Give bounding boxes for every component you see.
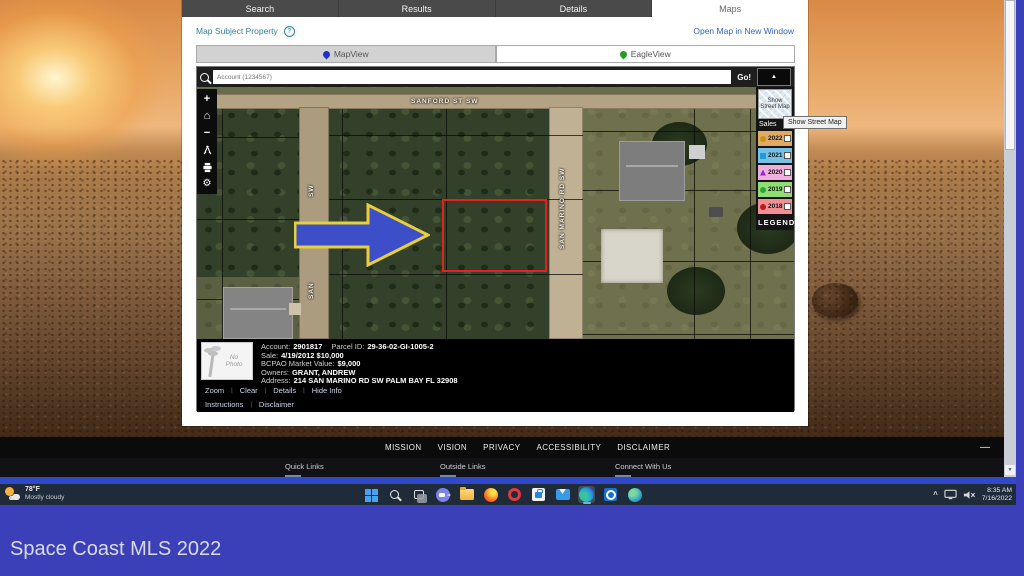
page-scrollbar[interactable]: ▼ (1004, 0, 1016, 477)
legend-marker-icon (760, 187, 766, 193)
footer-vision-link[interactable]: VISION (438, 443, 468, 452)
legend-row-2020[interactable]: 2020 (758, 165, 792, 180)
globe-icon (628, 488, 642, 502)
file-explorer-button[interactable] (458, 486, 475, 503)
parcel-line (197, 219, 299, 220)
show-street-map-tooltip: Show Street Map (783, 116, 847, 129)
eagle-pin-icon (618, 49, 628, 59)
legend-year: 2018 (768, 203, 782, 210)
opera-button[interactable] (506, 486, 523, 503)
map-subject-property-link[interactable]: Map Subject Property ? (196, 26, 295, 37)
street-label-san-marino: SAN MARINO RD SW (559, 139, 566, 249)
search-icon (390, 490, 399, 499)
outlook-icon (604, 488, 617, 501)
scrollbar-down-arrow[interactable]: ▼ (1005, 465, 1015, 475)
clock-date: 7/16/2022 (982, 495, 1012, 503)
go-button[interactable]: Go! (735, 73, 753, 82)
subject-parcel-outline[interactable] (442, 199, 547, 272)
task-view-icon (414, 490, 424, 499)
property-details-text: Account:2901817Parcel ID:29-36-02-GI-100… (261, 342, 467, 381)
tab-results[interactable]: Results (339, 0, 496, 17)
mls-content-panel: Search Results Details Maps Map Subject … (182, 0, 808, 426)
print-button[interactable] (199, 160, 215, 174)
street-label-left-fragment-bottom: SAN (308, 271, 315, 299)
footer-accessibility-link[interactable]: ACCESSIBILITY (536, 443, 601, 452)
legend-footer-label: LEGEND (758, 216, 792, 227)
legend-panel: Show Street Map Sales 2022 2021 2 (756, 87, 794, 230)
edge-button[interactable] (578, 486, 595, 503)
road-sanford-st (197, 94, 794, 109)
parcel-line (694, 109, 695, 339)
legend-checkbox[interactable] (784, 203, 791, 210)
firefox-icon (484, 488, 498, 502)
subject-arrow-icon (294, 203, 430, 267)
parcel-line (329, 274, 583, 275)
grass-strip (197, 87, 794, 94)
street-label-left-fragment-top: SW (308, 165, 315, 197)
clear-link[interactable]: Clear (240, 386, 258, 395)
no-photo-label: No Photo (222, 354, 246, 368)
help-icon[interactable]: ? (284, 26, 295, 37)
legend-row-2022[interactable]: 2022 (758, 131, 792, 146)
outlook-button[interactable] (602, 486, 619, 503)
shed (689, 145, 705, 159)
legend-year: 2020 (768, 169, 782, 176)
street-label-sanford: SANFORD ST SW (411, 98, 479, 105)
task-view-button[interactable] (410, 486, 427, 503)
collapse-panel-button[interactable]: ▲ (757, 68, 791, 86)
tab-search[interactable]: Search (182, 0, 339, 17)
legend-year: 2021 (768, 152, 782, 159)
compass-icon (202, 145, 213, 156)
legend-marker-icon (760, 170, 766, 176)
no-photo-thumbnail: No Photo (201, 342, 253, 380)
legend-checkbox[interactable] (784, 152, 791, 159)
tab-details[interactable]: Details (496, 0, 653, 17)
tab-maps[interactable]: Maps (652, 0, 808, 17)
road-san-marino (549, 107, 583, 339)
file-explorer-icon (460, 489, 474, 500)
system-tray: ^ 8:35 AM 7/16/2022 (933, 484, 1012, 505)
map-help-links: Instructions| Disclaimer (197, 397, 794, 412)
opera-icon (508, 488, 521, 501)
windows-taskbar: 78°F Mostly cloudy ^ (0, 484, 1016, 505)
palm-fronds-icon (204, 348, 214, 353)
show-street-map-button[interactable]: Show Street Map (758, 89, 792, 119)
legend-row-2019[interactable]: 2019 (758, 182, 792, 197)
aerial-map[interactable]: SANFORD ST SW SAN MARINO RD SW SW SAN + … (197, 87, 794, 339)
screen: Search Results Details Maps Map Subject … (0, 0, 1024, 576)
parcel-line (329, 135, 583, 136)
eagle-view-label: EagleView (631, 49, 671, 59)
parcel-line (750, 109, 751, 339)
taskbar-clock[interactable]: 8:35 AM 7/16/2022 (982, 487, 1012, 503)
store-icon (532, 488, 545, 501)
quick-links-heading: Quick Links (285, 462, 324, 477)
home-button[interactable]: ⌂ (199, 109, 215, 123)
map-action-links: Zoom| Clear| Details| Hide Info (197, 384, 794, 397)
account-search-input[interactable] (213, 70, 731, 84)
legend-marker-icon (760, 153, 766, 159)
footer-privacy-link[interactable]: PRIVACY (483, 443, 520, 452)
beach-shell (812, 283, 858, 317)
map-view-tabs: MapView EagleView (196, 45, 795, 63)
gis-app-button[interactable] (626, 486, 643, 503)
legend-marker-icon (760, 204, 766, 210)
map-search-toolbar: Go! ▲ (197, 67, 794, 87)
instructions-link[interactable]: Instructions (205, 400, 243, 409)
store-button[interactable] (530, 486, 547, 503)
concrete-pad (601, 229, 663, 283)
map-subheader: Map Subject Property ? Open Map in New W… (182, 17, 808, 45)
connect-with-us-heading: Connect With Us (615, 462, 671, 477)
open-map-new-window-link[interactable]: Open Map in New Window (693, 26, 794, 36)
footer-minimize-button[interactable]: — (980, 437, 990, 458)
chat-icon (436, 488, 450, 502)
main-tabs: Search Results Details Maps (182, 0, 808, 17)
volume-mute-icon[interactable] (963, 490, 976, 500)
tree-blob (667, 267, 725, 315)
legend-row-2021[interactable]: 2021 (758, 148, 792, 163)
map-tools: + ⌂ − (197, 89, 217, 194)
tray-chevron-icon[interactable]: ^ (933, 490, 938, 499)
watermark-text: Space Coast MLS 2022 (10, 538, 221, 561)
outside-links-heading: Outside Links (440, 462, 485, 477)
weather-condition: Mostly cloudy (25, 494, 64, 502)
zoom-link[interactable]: Zoom (205, 386, 224, 395)
property-info-bar: No Photo Account:2901817Parcel ID:29-36-… (197, 339, 794, 384)
taskbar-search-button[interactable] (386, 486, 403, 503)
start-icon (365, 489, 371, 495)
palm-icon (208, 353, 214, 377)
weather-icon (5, 487, 20, 501)
measure-button[interactable] (199, 143, 215, 157)
network-icon[interactable] (944, 489, 957, 500)
legend-year: 2019 (768, 186, 782, 193)
start-button[interactable] (362, 486, 379, 503)
legend-marker-icon (760, 136, 766, 142)
legend-row-2018[interactable]: 2018 (758, 199, 792, 214)
bins (709, 207, 723, 217)
weather-widget[interactable]: 78°F Mostly cloudy (5, 486, 64, 502)
legend-checkbox[interactable] (784, 135, 791, 142)
info-row-address: Address:214 SAN MARINO RD SW PALM BAY FL… (261, 377, 467, 386)
mail-button[interactable] (554, 486, 571, 503)
zoom-out-button[interactable]: − (199, 126, 215, 140)
map-view-label: MapView (334, 49, 369, 59)
taskbar-icons (362, 486, 643, 503)
map-subject-property-label: Map Subject Property (196, 26, 278, 36)
scrollbar-thumb[interactable] (1005, 0, 1015, 150)
map-pin-icon (321, 49, 331, 59)
site-footer-nav: MISSION VISION PRIVACY ACCESSIBILITY DIS… (0, 437, 1004, 458)
tab-map-view[interactable]: MapView (196, 45, 496, 63)
settings-button[interactable]: ⚙ (199, 177, 215, 191)
tab-eagle-view[interactable]: EagleView (496, 45, 796, 63)
footer-mission-link[interactable]: MISSION (385, 443, 422, 452)
bcpao-map-widget: Go! ▲ (196, 66, 795, 411)
disclaimer-link[interactable]: Disclaimer (259, 400, 294, 409)
details-link[interactable]: Details (273, 386, 296, 395)
mail-icon (556, 489, 570, 500)
legend-checkbox[interactable] (784, 169, 791, 176)
driveway (289, 303, 301, 315)
chat-button[interactable] (434, 486, 451, 503)
house (619, 141, 685, 201)
edge-icon (579, 487, 594, 502)
legend-checkbox[interactable] (784, 186, 791, 193)
zoom-in-button[interactable]: + (199, 92, 215, 106)
parcel-line (583, 334, 794, 335)
search-icon (200, 73, 209, 82)
firefox-button[interactable] (482, 486, 499, 503)
site-footer-columns: Quick Links Outside Links Connect With U… (0, 458, 1004, 477)
house (223, 287, 293, 339)
weather-temp: 78°F (25, 486, 64, 494)
printer-icon (202, 162, 213, 173)
hide-info-link[interactable]: Hide Info (312, 386, 342, 395)
clock-time: 8:35 AM (982, 487, 1012, 495)
footer-disclaimer-link[interactable]: DISCLAIMER (617, 443, 670, 452)
page-bottom-band (0, 477, 1016, 484)
legend-year: 2022 (768, 135, 782, 142)
